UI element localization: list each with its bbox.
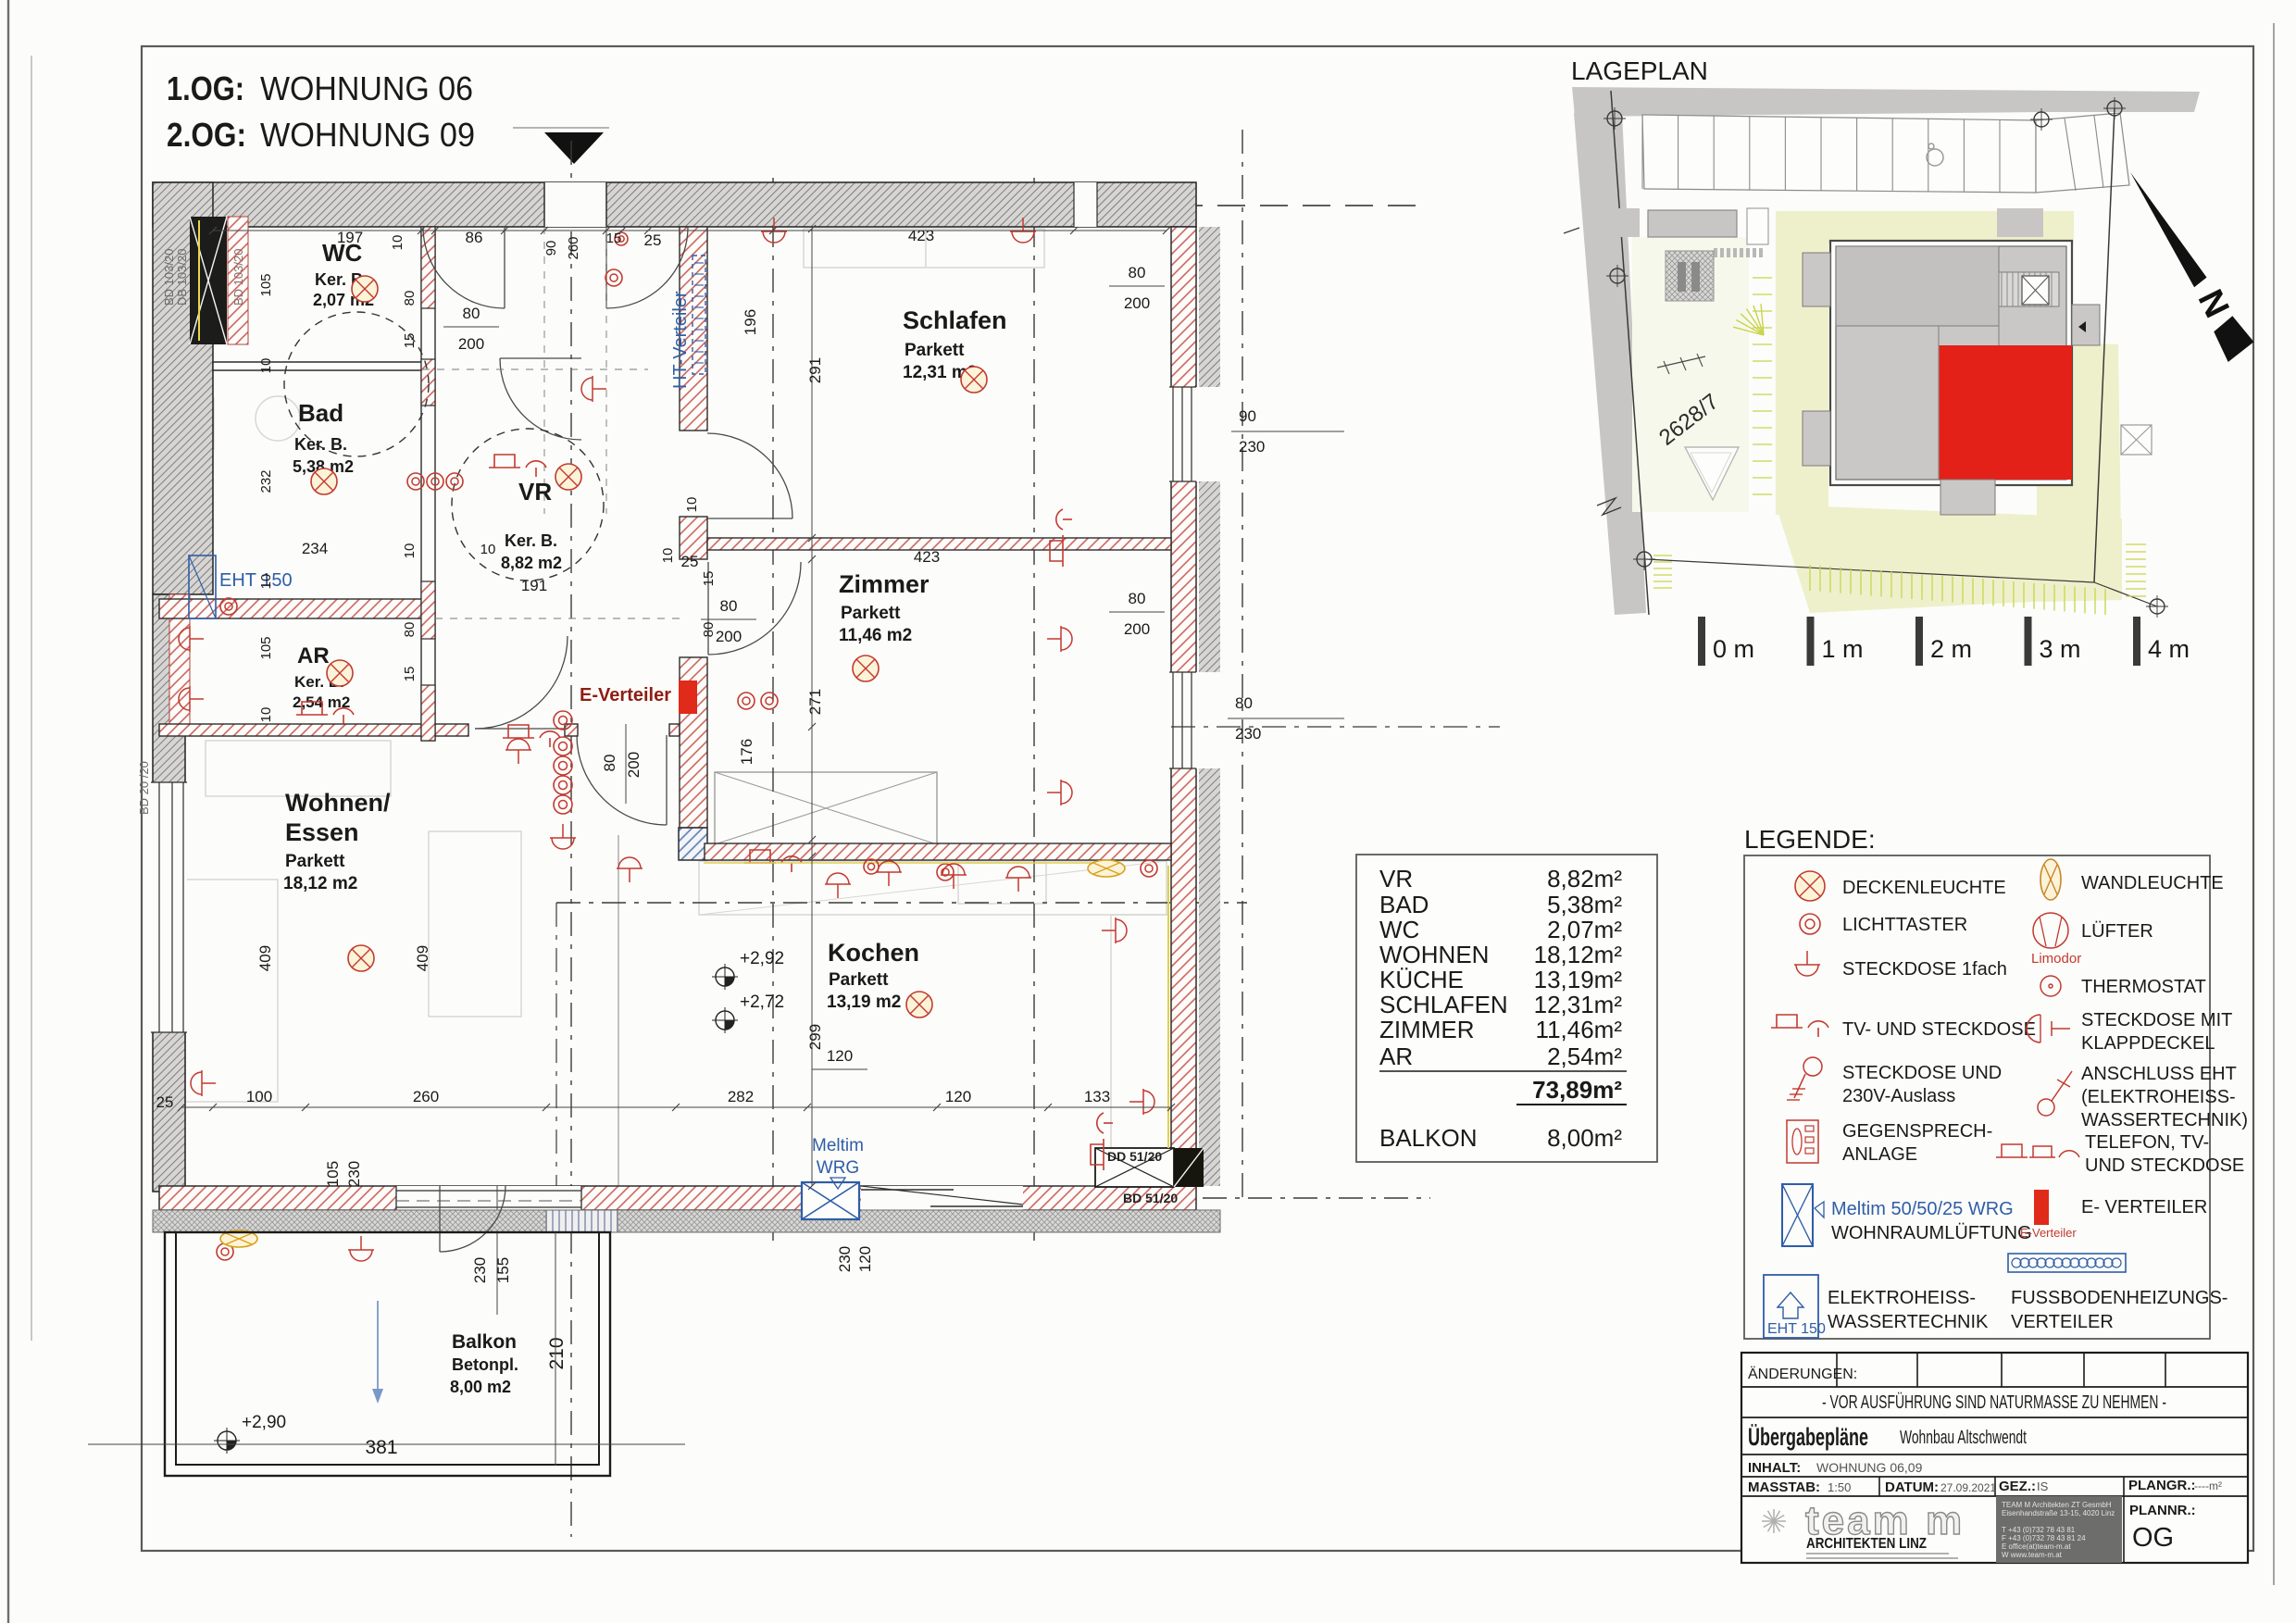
svg-text:Meltim: Meltim [812, 1136, 864, 1155]
svg-text:10: 10 [480, 542, 496, 557]
svg-text:(ELEKTROHEISS-: (ELEKTROHEISS- [2081, 1087, 2236, 1107]
svg-text:15: 15 [402, 333, 418, 349]
svg-text:SCHLAFEN: SCHLAFEN [1379, 991, 1508, 1018]
svg-text:80: 80 [1129, 264, 1146, 281]
svg-text:BALKON: BALKON [1379, 1124, 1478, 1152]
svg-text:WANDLEUCHTE: WANDLEUCHTE [2081, 873, 2224, 893]
svg-text:+2,92: +2,92 [740, 949, 784, 968]
svg-text:2.OG:: 2.OG: [167, 116, 246, 154]
svg-text:Limodor: Limodor [2031, 951, 2081, 967]
svg-text:10: 10 [402, 543, 418, 559]
svg-text:BD 103/20: BD 103/20 [162, 249, 176, 306]
svg-text:BD 51/20: BD 51/20 [1123, 1191, 1178, 1205]
svg-text:234: 234 [302, 540, 328, 557]
svg-text:8,00m²: 8,00m² [1547, 1124, 1622, 1152]
svg-text:INHALT:: INHALT: [1748, 1460, 1801, 1476]
svg-text:WASSERTECHNIK: WASSERTECHNIK [1828, 1312, 1989, 1332]
svg-text:FUSSBODENHEIZUNGS-: FUSSBODENHEIZUNGS- [2011, 1288, 2227, 1308]
svg-text:80: 80 [402, 622, 418, 638]
svg-text:Wohnen/: Wohnen/ [285, 789, 391, 817]
svg-text:200: 200 [625, 752, 643, 778]
svg-text:5,38m²: 5,38m² [1547, 891, 1622, 918]
svg-text:Bad: Bad [298, 399, 343, 427]
svg-text:W www.team-m.at: W www.team-m.at [2002, 1551, 2063, 1559]
svg-text:ELEKTROHEISS-: ELEKTROHEISS- [1828, 1288, 1976, 1308]
svg-text:DD 51/20: DD 51/20 [1107, 1149, 1162, 1164]
svg-text:ZIMMER: ZIMMER [1379, 1016, 1475, 1043]
svg-text:90: 90 [543, 241, 559, 256]
svg-text:1:50: 1:50 [1828, 1480, 1851, 1494]
svg-text:90: 90 [1239, 407, 1256, 425]
svg-text:73,89m²: 73,89m² [1532, 1076, 1622, 1104]
svg-text:----m²: ----m² [2194, 1479, 2222, 1492]
svg-text:E-Verteiler: E-Verteiler [580, 685, 671, 705]
svg-text:AR: AR [1379, 1042, 1413, 1070]
svg-text:DB 103/20: DB 103/20 [175, 249, 189, 306]
svg-text:STECKDOSE MIT: STECKDOSE MIT [2081, 1010, 2232, 1030]
svg-text:10: 10 [258, 574, 274, 590]
svg-text:MASSTAB:: MASSTAB: [1748, 1479, 1820, 1495]
svg-text:EHT 150: EHT 150 [1767, 1321, 1826, 1337]
svg-text:27.09.2021: 27.09.2021 [1940, 1481, 1996, 1494]
svg-text:105: 105 [324, 1161, 342, 1187]
svg-text:10: 10 [258, 707, 274, 723]
svg-text:Ker. B.: Ker. B. [294, 435, 347, 454]
svg-text:WOHNUNG 06,09: WOHNUNG 06,09 [1816, 1460, 1923, 1475]
svg-text:Wohnbau Altschwendt: Wohnbau Altschwendt [1900, 1428, 2027, 1448]
svg-text:299: 299 [806, 1024, 824, 1050]
svg-text:80: 80 [402, 291, 418, 306]
svg-text:423: 423 [908, 227, 934, 244]
svg-text:196: 196 [742, 309, 759, 335]
svg-text:120: 120 [945, 1088, 971, 1105]
svg-text:GEGENSPRECH-: GEGENSPRECH- [1842, 1121, 1992, 1142]
svg-text:VR: VR [518, 478, 552, 506]
svg-text:LÜFTER: LÜFTER [2081, 921, 2153, 942]
svg-text:WASSERTECHNIK): WASSERTECHNIK) [2081, 1110, 2248, 1130]
svg-text:80: 80 [463, 305, 480, 322]
svg-text:OG: OG [2132, 1523, 2174, 1553]
svg-text:- VOR AUSFÜHRUNG SIND NATURMAS: - VOR AUSFÜHRUNG SIND NATURMASSE ZU NEHM… [1822, 1392, 2166, 1413]
svg-text:230: 230 [1235, 725, 1261, 743]
svg-text:VERTEILER: VERTEILER [2011, 1312, 2114, 1332]
svg-text:ÄNDERUNGEN:: ÄNDERUNGEN: [1748, 1366, 1857, 1382]
svg-text:HT-Verteiler: HT-Verteiler [670, 291, 691, 389]
svg-text:11,46m²: 11,46m² [1536, 1016, 1623, 1043]
svg-text:25: 25 [681, 553, 699, 570]
svg-text:F +43 (0)732 78 43 81 24: F +43 (0)732 78 43 81 24 [2002, 1534, 2086, 1542]
svg-text:Übergabepläne: Übergabepläne [1748, 1423, 1868, 1451]
svg-text:PLANGR.:: PLANGR.: [2128, 1478, 2196, 1493]
svg-text:Eisenhandstraße 13-15, 4020 Li: Eisenhandstraße 13-15, 4020 Linz [2002, 1509, 2115, 1517]
svg-text:Essen: Essen [285, 818, 359, 846]
svg-text:BD 103/20: BD 103/20 [231, 249, 245, 306]
svg-text:80: 80 [601, 755, 618, 772]
svg-text:1.OG:: 1.OG: [167, 69, 244, 107]
svg-text:260: 260 [413, 1088, 439, 1105]
svg-text:271: 271 [806, 689, 824, 715]
svg-text:ANLAGE: ANLAGE [1842, 1144, 1917, 1165]
svg-text:KÜCHE: KÜCHE [1379, 966, 1464, 993]
svg-text:Balkon: Balkon [452, 1331, 517, 1353]
svg-text:KLAPPDECKEL: KLAPPDECKEL [2081, 1033, 2215, 1054]
svg-text:18,12 m2: 18,12 m2 [283, 874, 357, 893]
svg-text:WOHNRAUMLÜFTUNG: WOHNRAUMLÜFTUNG [1831, 1223, 2032, 1243]
svg-text:230: 230 [471, 1257, 489, 1283]
svg-text:AR: AR [297, 643, 330, 668]
svg-text:WOHNUNG 09: WOHNUNG 09 [260, 116, 475, 154]
svg-text:25: 25 [644, 231, 662, 249]
svg-text:176: 176 [738, 739, 755, 765]
svg-text:3 m: 3 m [2040, 635, 2081, 663]
svg-text:WOHNEN: WOHNEN [1379, 941, 1489, 968]
svg-text:10: 10 [258, 358, 274, 374]
svg-text:Ker. B.: Ker. B. [505, 531, 557, 550]
svg-text:423: 423 [914, 548, 940, 566]
svg-text:230: 230 [836, 1246, 854, 1272]
svg-text:THERMOSTAT: THERMOSTAT [2081, 977, 2206, 997]
svg-text:STECKDOSE 1fach: STECKDOSE 1fach [1842, 959, 2007, 980]
svg-text:80: 80 [1129, 590, 1146, 607]
svg-text:GEZ.:: GEZ.: [1999, 1479, 2036, 1494]
svg-text:200: 200 [716, 628, 742, 645]
svg-text:2,54m²: 2,54m² [1547, 1042, 1622, 1070]
svg-text:4 m: 4 m [2148, 635, 2190, 663]
svg-text:282: 282 [728, 1088, 754, 1105]
svg-text:Parkett: Parkett [905, 341, 965, 360]
svg-text:86: 86 [466, 229, 483, 246]
svg-text:80: 80 [1235, 694, 1253, 712]
svg-text:LICHTTASTER: LICHTTASTER [1842, 915, 1967, 935]
svg-text:BAD: BAD [1379, 891, 1429, 918]
svg-text:260: 260 [566, 236, 581, 259]
svg-text:191: 191 [521, 577, 547, 594]
svg-text:232: 232 [258, 469, 274, 493]
svg-text:230: 230 [345, 1161, 363, 1187]
svg-text:12,31m²: 12,31m² [1534, 991, 1623, 1018]
svg-text:WRG: WRG [817, 1158, 859, 1178]
svg-text:80: 80 [701, 622, 717, 638]
svg-text:105: 105 [258, 273, 274, 296]
svg-text:Kochen: Kochen [828, 939, 919, 967]
svg-text:Parkett: Parkett [829, 970, 889, 990]
svg-text:UND STECKDOSE: UND STECKDOSE [2085, 1155, 2244, 1176]
svg-text:15: 15 [402, 667, 418, 682]
svg-text:LEGENDE:: LEGENDE: [1744, 825, 1876, 854]
svg-text:TEAM M Architekten ZT GesmbH: TEAM M Architekten ZT GesmbH [2002, 1501, 2112, 1509]
svg-text:EHT 150: EHT 150 [219, 570, 293, 591]
svg-text:STECKDOSE UND: STECKDOSE UND [1842, 1063, 2002, 1083]
svg-text:230V-Auslass: 230V-Auslass [1842, 1086, 1955, 1106]
svg-text:230: 230 [1239, 438, 1265, 456]
svg-text:100: 100 [246, 1088, 272, 1105]
svg-text:Parkett: Parkett [285, 852, 345, 871]
svg-text:PLANNR.:: PLANNR.: [2129, 1503, 2196, 1518]
svg-text:15: 15 [701, 571, 717, 587]
svg-text:381: 381 [365, 1437, 397, 1458]
svg-text:25: 25 [156, 1093, 174, 1111]
svg-text:E office(at)team-m.at: E office(at)team-m.at [2002, 1542, 2071, 1551]
svg-text:ARCHITEKTEN LINZ: ARCHITEKTEN LINZ [1806, 1536, 1927, 1552]
svg-text:8,82 m2: 8,82 m2 [501, 554, 562, 572]
svg-text:8,00 m2: 8,00 m2 [450, 1378, 511, 1396]
svg-text:WC: WC [1379, 916, 1419, 943]
svg-text:DATUM:: DATUM: [1885, 1479, 1939, 1495]
svg-text:120: 120 [856, 1246, 874, 1272]
svg-text:E- VERTEILER: E- VERTEILER [2081, 1197, 2207, 1217]
svg-text:8,82m²: 8,82m² [1547, 865, 1622, 893]
svg-text:120: 120 [827, 1047, 853, 1065]
svg-text:TELEFON, TV-: TELEFON, TV- [2085, 1132, 2209, 1153]
svg-text:10: 10 [684, 497, 700, 513]
svg-text:Meltim 50/50/25 WRG: Meltim 50/50/25 WRG [1831, 1199, 2014, 1219]
svg-text:Betonpl.: Betonpl. [452, 1355, 518, 1374]
svg-text:80: 80 [720, 597, 738, 615]
svg-text:18,12m²: 18,12m² [1534, 941, 1623, 968]
svg-text:10: 10 [660, 548, 676, 564]
svg-text:WOHNUNG 06: WOHNUNG 06 [260, 69, 473, 107]
svg-text:BD 20 /20: BD 20 /20 [137, 761, 151, 815]
svg-text:2 m: 2 m [1930, 635, 1972, 663]
svg-text:409: 409 [414, 945, 431, 971]
svg-text:+2,90: +2,90 [242, 1413, 286, 1432]
svg-text:200: 200 [458, 335, 484, 353]
svg-text:LAGEPLAN: LAGEPLAN [1571, 56, 1708, 85]
svg-text:105: 105 [258, 636, 274, 659]
svg-text:0 m: 0 m [1713, 635, 1754, 663]
svg-text:2,07m²: 2,07m² [1547, 916, 1622, 943]
svg-text:TV- UND STECKDOSE: TV- UND STECKDOSE [1842, 1019, 2036, 1040]
svg-text:T +43 (0)732 78 43 81: T +43 (0)732 78 43 81 [2002, 1526, 2076, 1534]
svg-text:VR: VR [1379, 865, 1413, 893]
svg-text:1 m: 1 m [1822, 635, 1864, 663]
svg-text:ANSCHLUSS EHT: ANSCHLUSS EHT [2081, 1064, 2237, 1084]
svg-text:409: 409 [256, 945, 274, 971]
svg-text:133: 133 [1084, 1088, 1110, 1105]
svg-text:197: 197 [337, 229, 363, 246]
svg-text:200: 200 [1124, 620, 1150, 638]
svg-text:+2,72: +2,72 [740, 993, 784, 1012]
svg-text:13,19m²: 13,19m² [1534, 966, 1623, 993]
svg-text:10: 10 [390, 235, 406, 251]
svg-text:DECKENLEUCHTE: DECKENLEUCHTE [1842, 878, 2006, 898]
svg-text:200: 200 [1124, 294, 1150, 312]
svg-text:E-Verteiler: E-Verteiler [2020, 1226, 2077, 1240]
svg-text:13,19 m2: 13,19 m2 [827, 993, 901, 1012]
svg-text:IS: IS [2037, 1479, 2049, 1493]
svg-text:Parkett: Parkett [841, 604, 901, 623]
svg-text:155: 155 [494, 1257, 512, 1283]
svg-text:Zimmer: Zimmer [839, 570, 930, 598]
svg-text:Schlafen: Schlafen [903, 306, 1007, 334]
svg-text:11,46 m2: 11,46 m2 [839, 626, 912, 645]
svg-text:291: 291 [806, 357, 824, 383]
svg-text:210: 210 [546, 1337, 568, 1369]
